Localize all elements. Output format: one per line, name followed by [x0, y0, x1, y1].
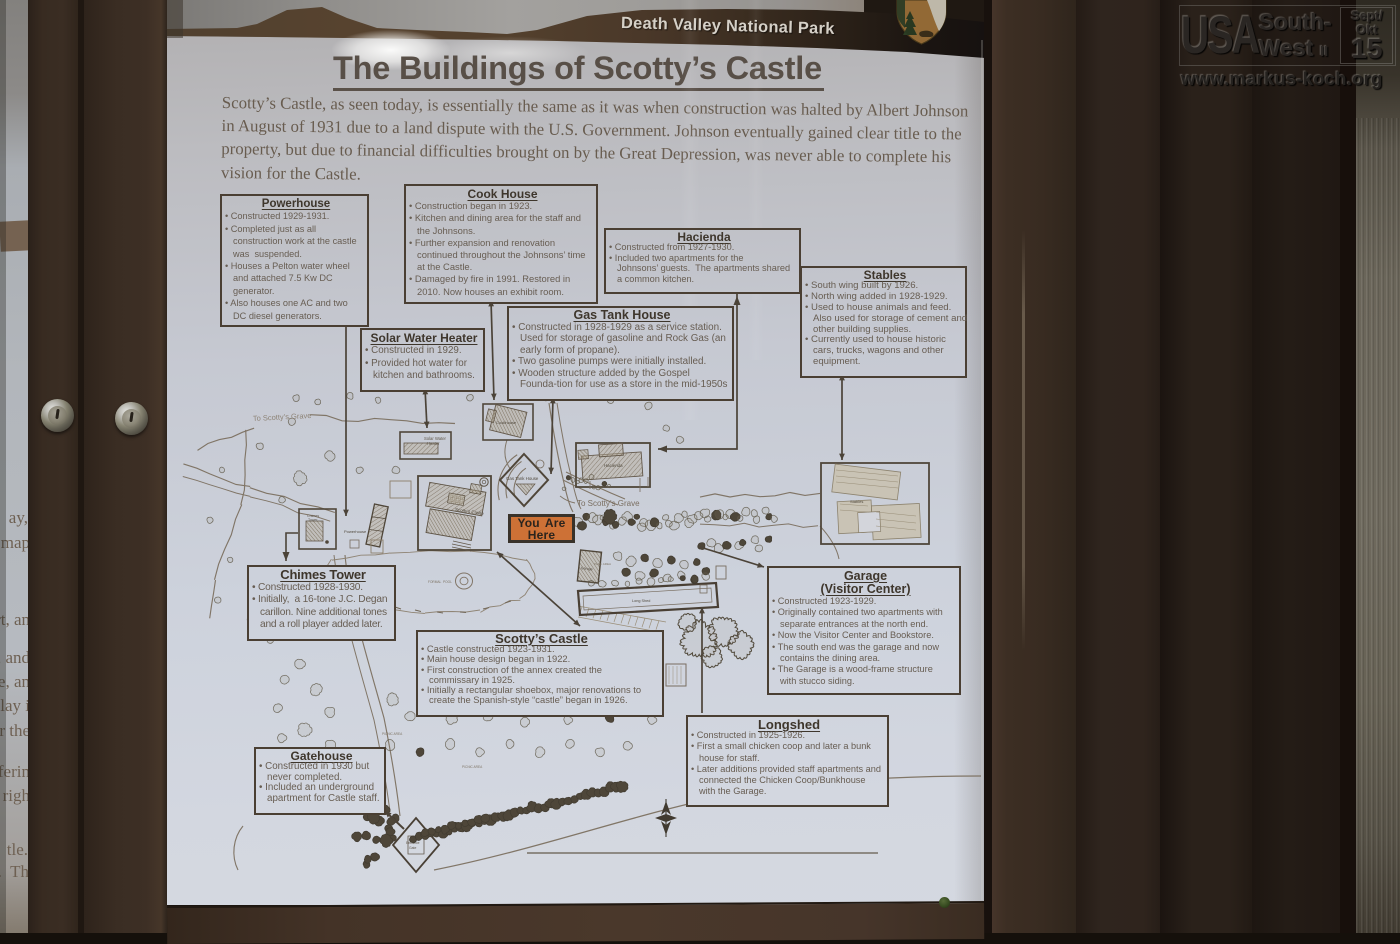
svg-text:PICNIC AREA: PICNIC AREA — [382, 732, 403, 736]
svg-text:To Scotty’s Grave: To Scotty’s Grave — [577, 499, 640, 508]
svg-text:Gas Tank House: Gas Tank House — [506, 476, 539, 481]
svg-text:PICNIC AREA: PICNIC AREA — [462, 765, 483, 769]
svg-text:Cookhouse: Cookhouse — [496, 420, 517, 425]
svg-text:To Scotty’s Grave: To Scotty’s Grave — [253, 411, 312, 423]
svg-text:FORMAL POOL: FORMAL POOL — [428, 580, 452, 584]
svg-text:Powerhouse: Powerhouse — [344, 529, 367, 534]
svg-text:Stables: Stables — [850, 499, 863, 504]
svg-text:Gate: Gate — [409, 846, 416, 850]
svg-text:Hacienda: Hacienda — [604, 463, 623, 468]
svg-text:Long Shed: Long Shed — [632, 599, 650, 603]
svg-text:PARK AREA: PARK AREA — [594, 562, 611, 566]
svg-text:Heater: Heater — [427, 441, 440, 446]
svg-text:Tower: Tower — [308, 518, 318, 522]
